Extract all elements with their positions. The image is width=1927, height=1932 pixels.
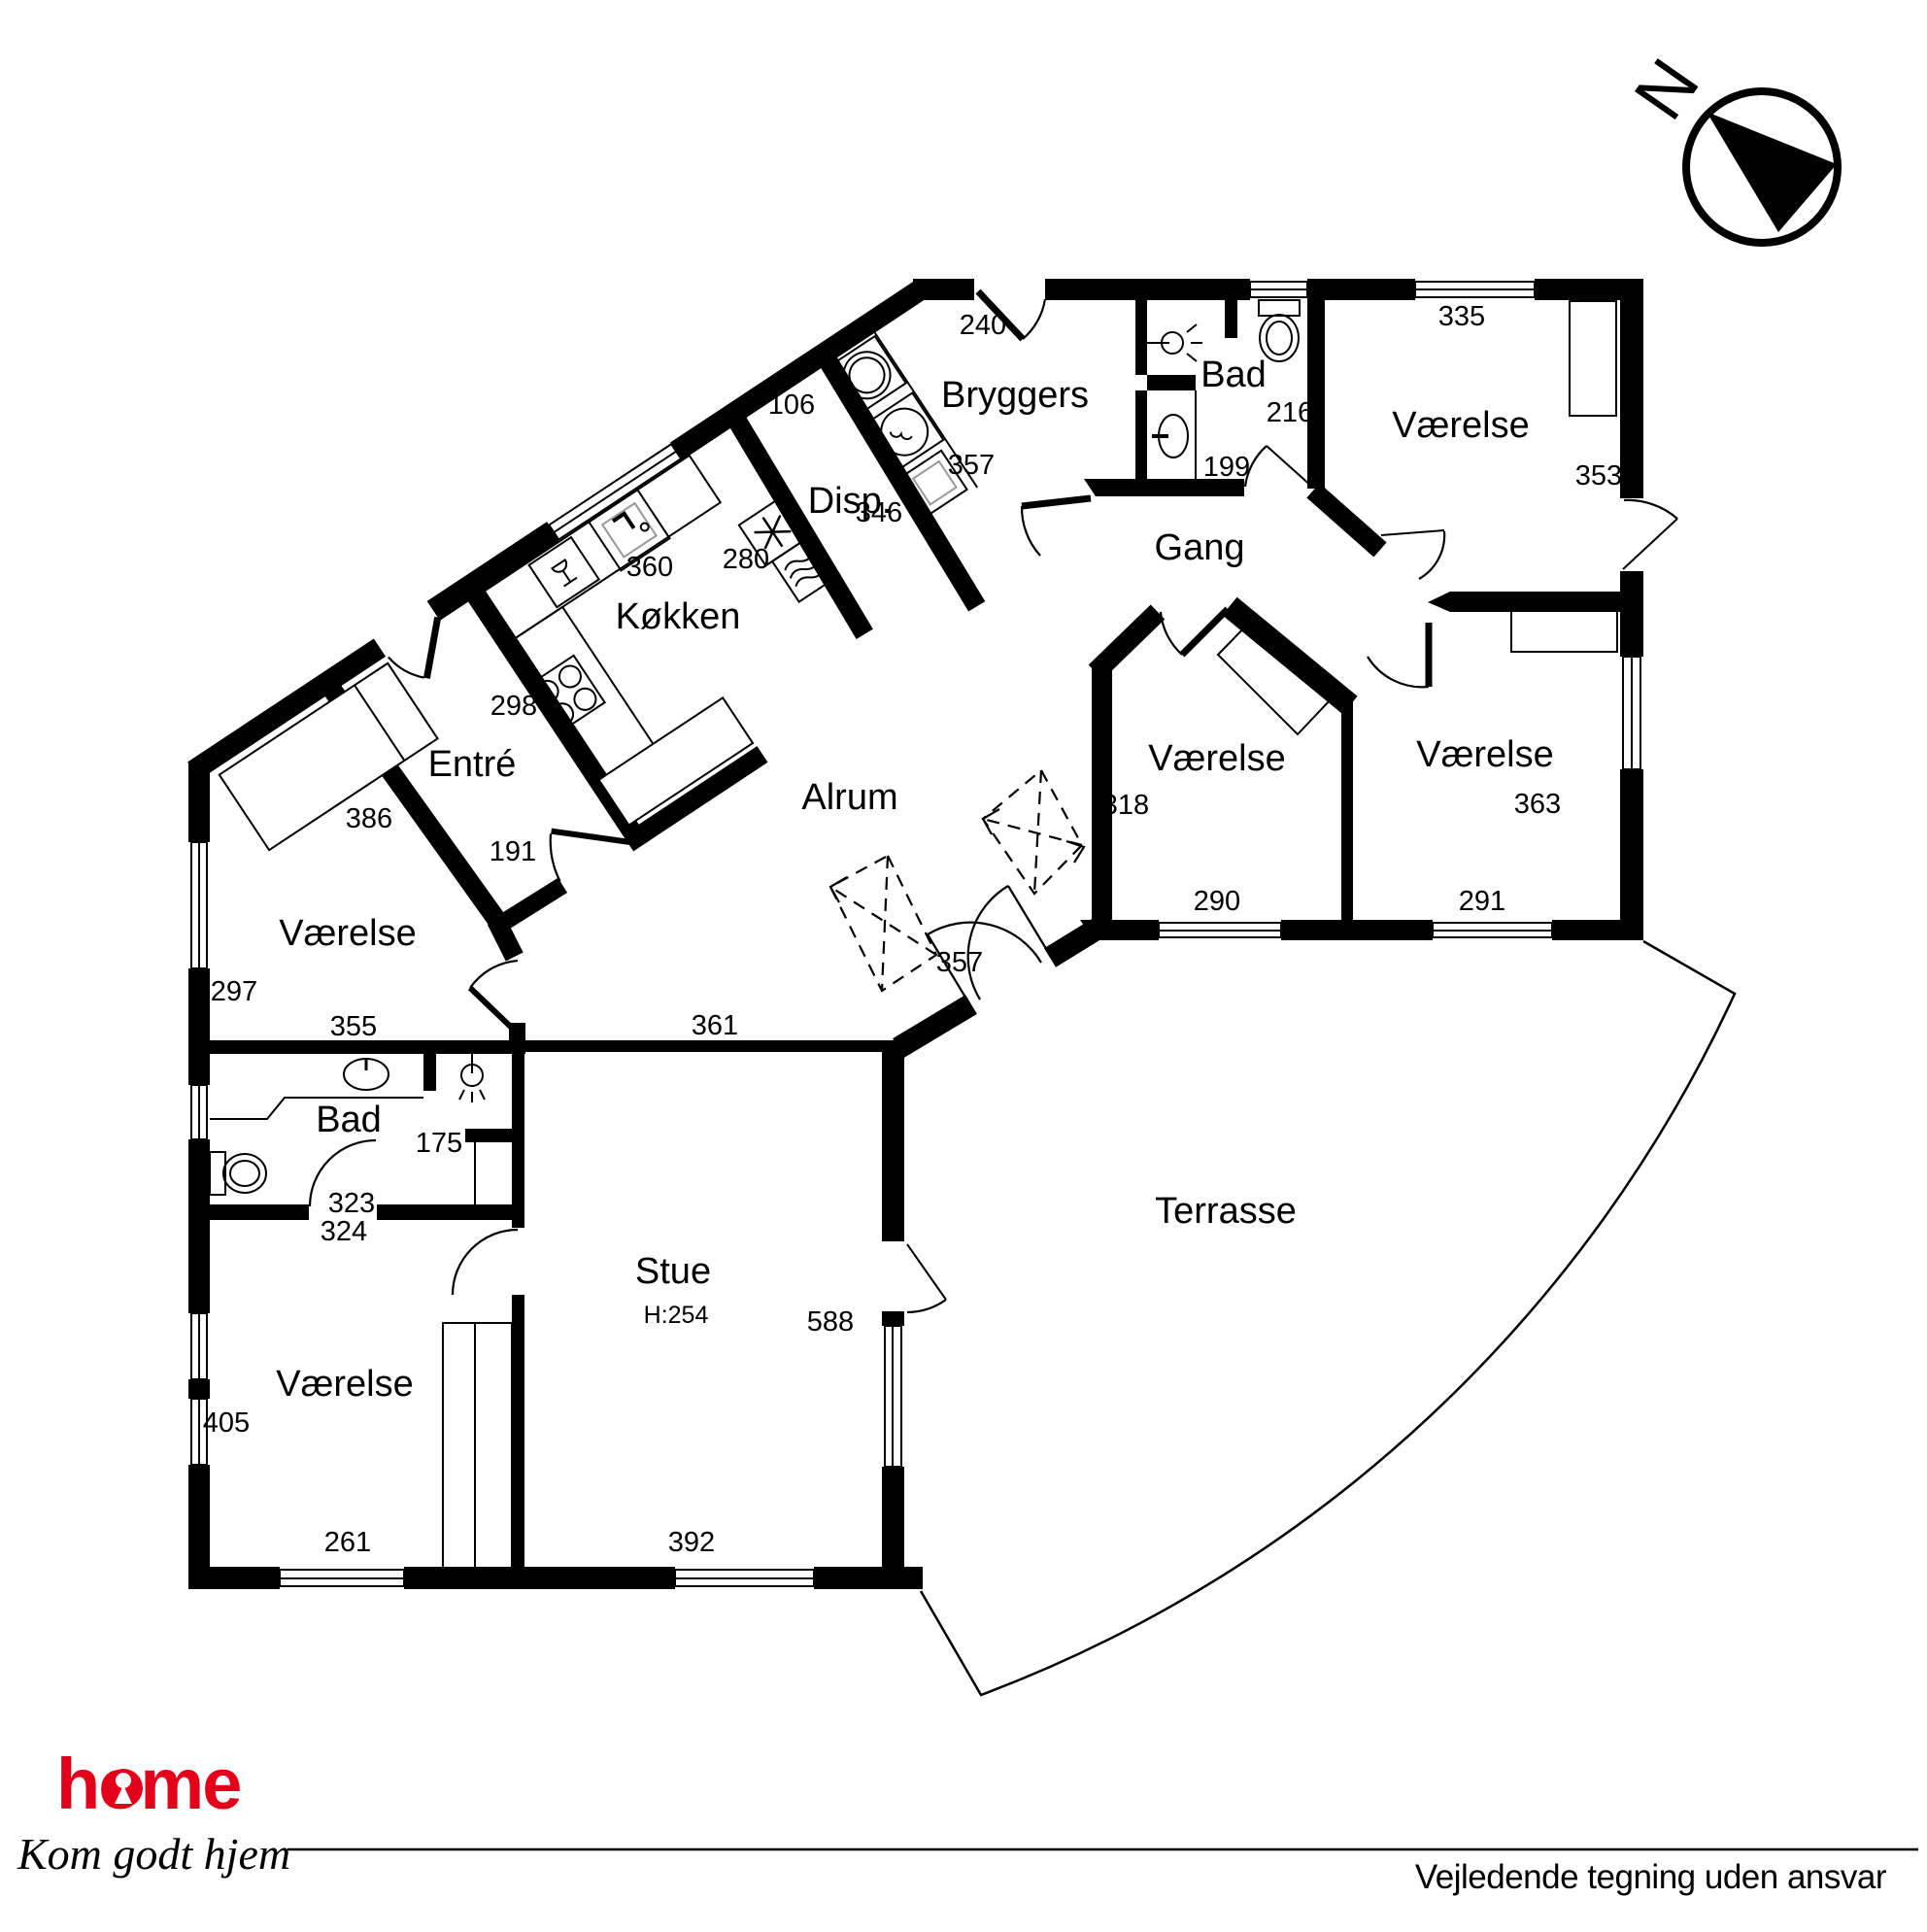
svg-text:355: 355 <box>330 1011 377 1042</box>
svg-text:291: 291 <box>1459 886 1505 917</box>
svg-text:297: 297 <box>211 976 257 1007</box>
svg-text:Vejledende tegning uden ansvar: Vejledende tegning uden ansvar <box>1415 1858 1887 1896</box>
svg-text:Terrasse: Terrasse <box>1155 1191 1297 1232</box>
svg-text:318: 318 <box>1102 790 1149 821</box>
svg-text:280: 280 <box>723 544 769 575</box>
svg-text:353: 353 <box>1575 460 1622 491</box>
svg-text:298: 298 <box>490 691 537 722</box>
svg-text:261: 261 <box>324 1527 371 1558</box>
svg-text:H:254: H:254 <box>644 1302 709 1329</box>
svg-text:Stue: Stue <box>635 1251 711 1292</box>
svg-text:405: 405 <box>203 1407 250 1439</box>
svg-text:Værelse: Værelse <box>1416 734 1554 775</box>
svg-text:361: 361 <box>692 1010 738 1041</box>
svg-text:Bryggers: Bryggers <box>941 375 1089 416</box>
svg-text:Værelse: Værelse <box>1392 405 1530 446</box>
svg-text:199: 199 <box>1203 452 1250 483</box>
svg-text:324: 324 <box>321 1216 367 1247</box>
svg-text:363: 363 <box>1514 789 1561 820</box>
svg-text:Værelse: Værelse <box>276 1364 414 1405</box>
svg-text:175: 175 <box>416 1128 462 1159</box>
svg-text:216: 216 <box>1267 397 1313 428</box>
svg-text:Entré: Entré <box>428 744 517 785</box>
svg-text:Alrum: Alrum <box>801 777 897 818</box>
svg-text:346: 346 <box>856 497 902 528</box>
svg-text:357: 357 <box>936 947 983 978</box>
svg-text:106: 106 <box>768 390 815 421</box>
svg-text:360: 360 <box>626 552 673 583</box>
svg-text:191: 191 <box>490 836 536 867</box>
svg-text:386: 386 <box>346 803 392 834</box>
svg-text:Bad: Bad <box>1200 355 1267 395</box>
svg-text:392: 392 <box>668 1527 715 1558</box>
svg-text:240: 240 <box>960 310 1006 341</box>
svg-text:home: home <box>56 1744 240 1824</box>
svg-text:Kom godt hjem: Kom godt hjem <box>17 1829 290 1879</box>
svg-text:Bad: Bad <box>316 1100 382 1140</box>
svg-text:Værelse: Værelse <box>1148 738 1286 779</box>
svg-text:290: 290 <box>1194 886 1240 917</box>
svg-text:588: 588 <box>807 1306 854 1338</box>
svg-text:335: 335 <box>1438 301 1485 332</box>
svg-text:357: 357 <box>948 450 995 481</box>
svg-text:Værelse: Værelse <box>279 913 417 954</box>
svg-text:Gang: Gang <box>1155 527 1245 568</box>
svg-text:Køkken: Køkken <box>616 596 741 637</box>
svg-text:323: 323 <box>328 1188 375 1219</box>
